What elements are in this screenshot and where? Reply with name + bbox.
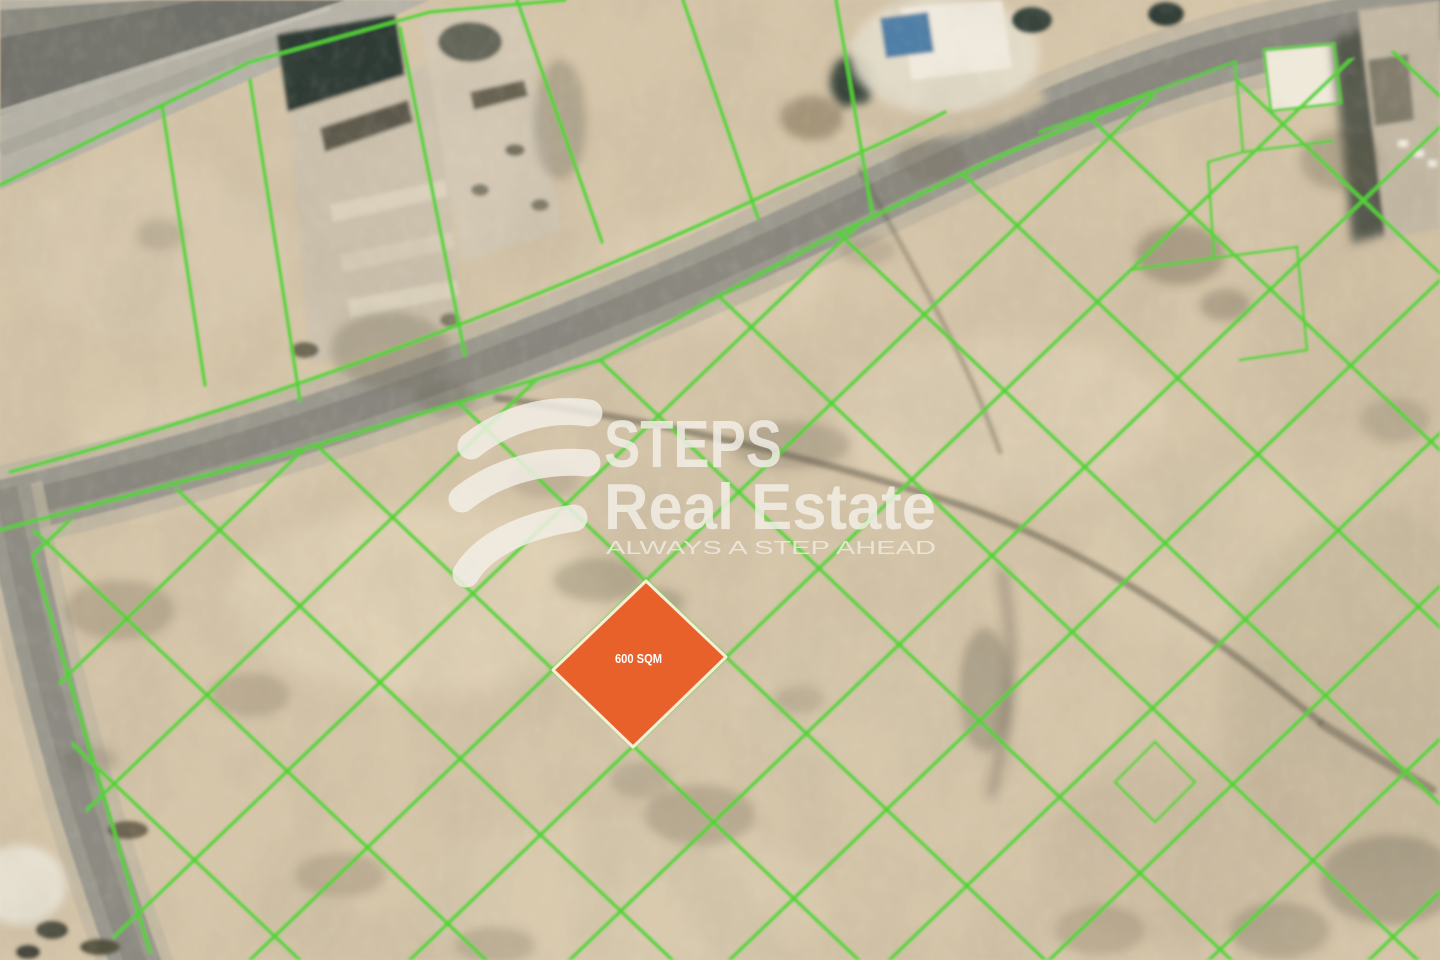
- satellite-listing-image: STEPS Real Estate ALWAYS A STEP AHEAD 60…: [0, 0, 1440, 960]
- satellite-map: STEPS Real Estate ALWAYS A STEP AHEAD 60…: [0, 0, 1440, 960]
- watermark-tagline: ALWAYS A STEP AHEAD: [606, 538, 936, 558]
- watermark-brand-line2: Real Estate: [604, 470, 936, 543]
- highlighted-plot-label: 600 SQM: [615, 651, 662, 666]
